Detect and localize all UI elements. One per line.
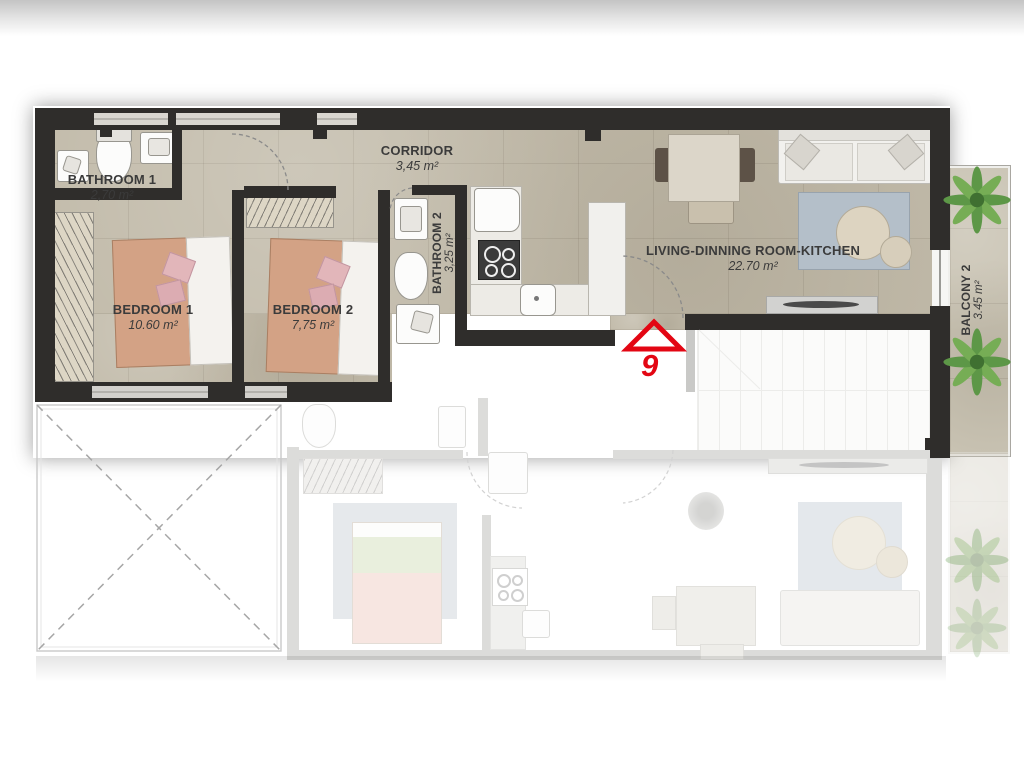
room-label-living: LIVING-DINNING ROOM-KITCHEN 22.70 m² [628, 243, 878, 274]
door-arc [232, 134, 288, 190]
floorplan-canvas: BATHROOM 1 2,70 m² CORRIDOR 3,45 m² BATH… [0, 0, 1024, 768]
room-name: CORRIDOR [352, 143, 482, 159]
room-area: 3.45 m² [973, 240, 987, 360]
room-area: 22.70 m² [628, 259, 878, 274]
vector-overlay [0, 0, 1024, 768]
plant-icon [943, 166, 1010, 233]
ghost-plant-icon [948, 599, 1007, 658]
room-area: 10.60 m² [83, 318, 223, 333]
void-x-marker [37, 405, 281, 651]
room-area: 2,70 m² [42, 188, 182, 203]
room-name: LIVING-DINNING ROOM-KITCHEN [628, 243, 878, 259]
ghost-door-arc [467, 452, 522, 508]
room-area: 3,45 m² [352, 159, 482, 174]
entrance-triangle-icon [627, 322, 681, 349]
room-name: BATHROOM 1 [42, 172, 182, 188]
room-label-bathroom2: BATHROOM 2 3,25 m² [430, 193, 464, 313]
room-label-bedroom1: BEDROOM 1 10.60 m² [83, 302, 223, 333]
room-label-bedroom2: BEDROOM 2 7,75 m² [243, 302, 383, 333]
stair-diagonal [699, 330, 760, 389]
room-label-corridor: CORRIDOR 3,45 m² [352, 143, 482, 174]
room-label-balcony2: BALCONY 2 3.45 m² [959, 240, 993, 360]
room-name: BEDROOM 1 [83, 302, 223, 318]
room-name: BALCONY 2 [959, 240, 973, 360]
room-area: 7,75 m² [243, 318, 383, 333]
room-label-bathroom1: BATHROOM 1 2,70 m² [42, 172, 182, 203]
room-name: BEDROOM 2 [243, 302, 383, 318]
room-area: 3,25 m² [444, 193, 458, 313]
unit-number: 9 [641, 348, 658, 384]
ghost-door-arc [623, 450, 673, 503]
door-arc [390, 188, 412, 211]
ghost-plant-icon [946, 529, 1009, 592]
room-name: BATHROOM 2 [430, 193, 444, 313]
